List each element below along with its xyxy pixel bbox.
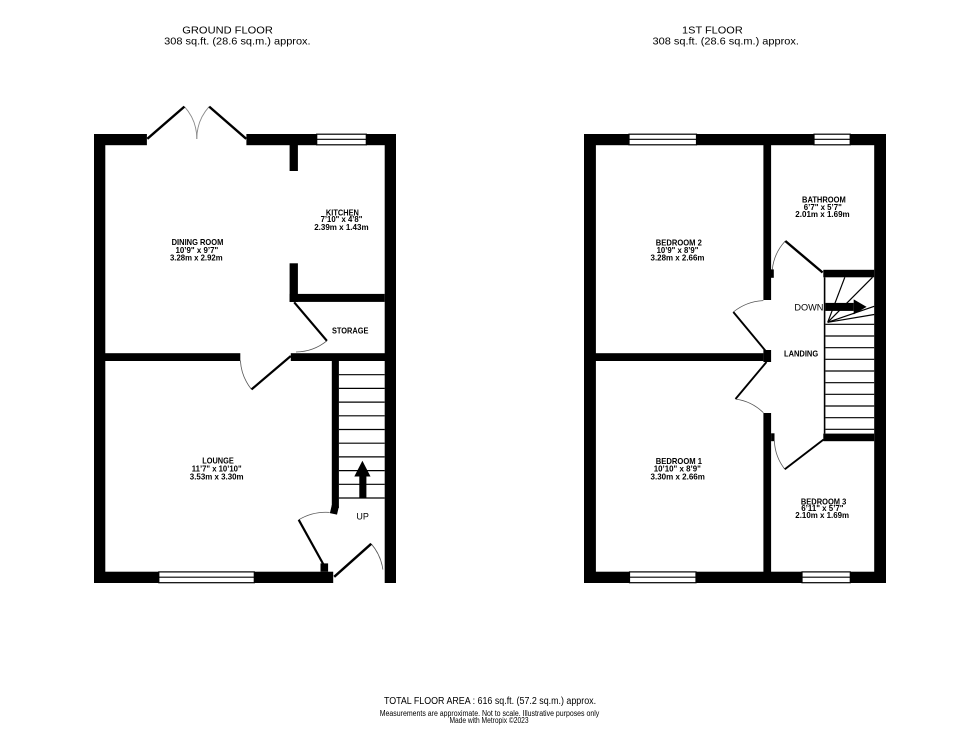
svg-text:TOTAL FLOOR AREA : 616 sq.ft.: TOTAL FLOOR AREA : 616 sq.ft. (57.2 sq.m… (384, 696, 596, 707)
svg-text:2.10m x 1.69m: 2.10m x 1.69m (795, 511, 849, 520)
svg-text:DOWN: DOWN (794, 302, 823, 313)
svg-text:308 sq.ft. (28.6 sq.m.) approx: 308 sq.ft. (28.6 sq.m.) approx. (164, 37, 310, 48)
svg-text:3.28m x 2.92m: 3.28m x 2.92m (170, 253, 223, 262)
svg-text:Made with Metropix ©2023: Made with Metropix ©2023 (449, 716, 529, 725)
svg-text:STORAGE: STORAGE (332, 325, 369, 335)
svg-text:GROUND FLOOR: GROUND FLOOR (182, 25, 273, 36)
svg-text:LANDING: LANDING (784, 349, 819, 359)
svg-text:2.01m x 1.69m: 2.01m x 1.69m (795, 210, 849, 219)
svg-text:3.53m x 3.30m: 3.53m x 3.30m (190, 472, 244, 481)
svg-text:2.39m x 1.43m: 2.39m x 1.43m (314, 223, 368, 232)
svg-text:UP: UP (356, 511, 369, 522)
svg-text:308 sq.ft. (28.6 sq.m.) approx: 308 sq.ft. (28.6 sq.m.) approx. (653, 37, 799, 48)
svg-text:3.30m x 2.66m: 3.30m x 2.66m (651, 472, 705, 481)
svg-text:3.28m x 2.66m: 3.28m x 2.66m (651, 253, 705, 262)
svg-text:1ST FLOOR: 1ST FLOOR (682, 25, 743, 36)
